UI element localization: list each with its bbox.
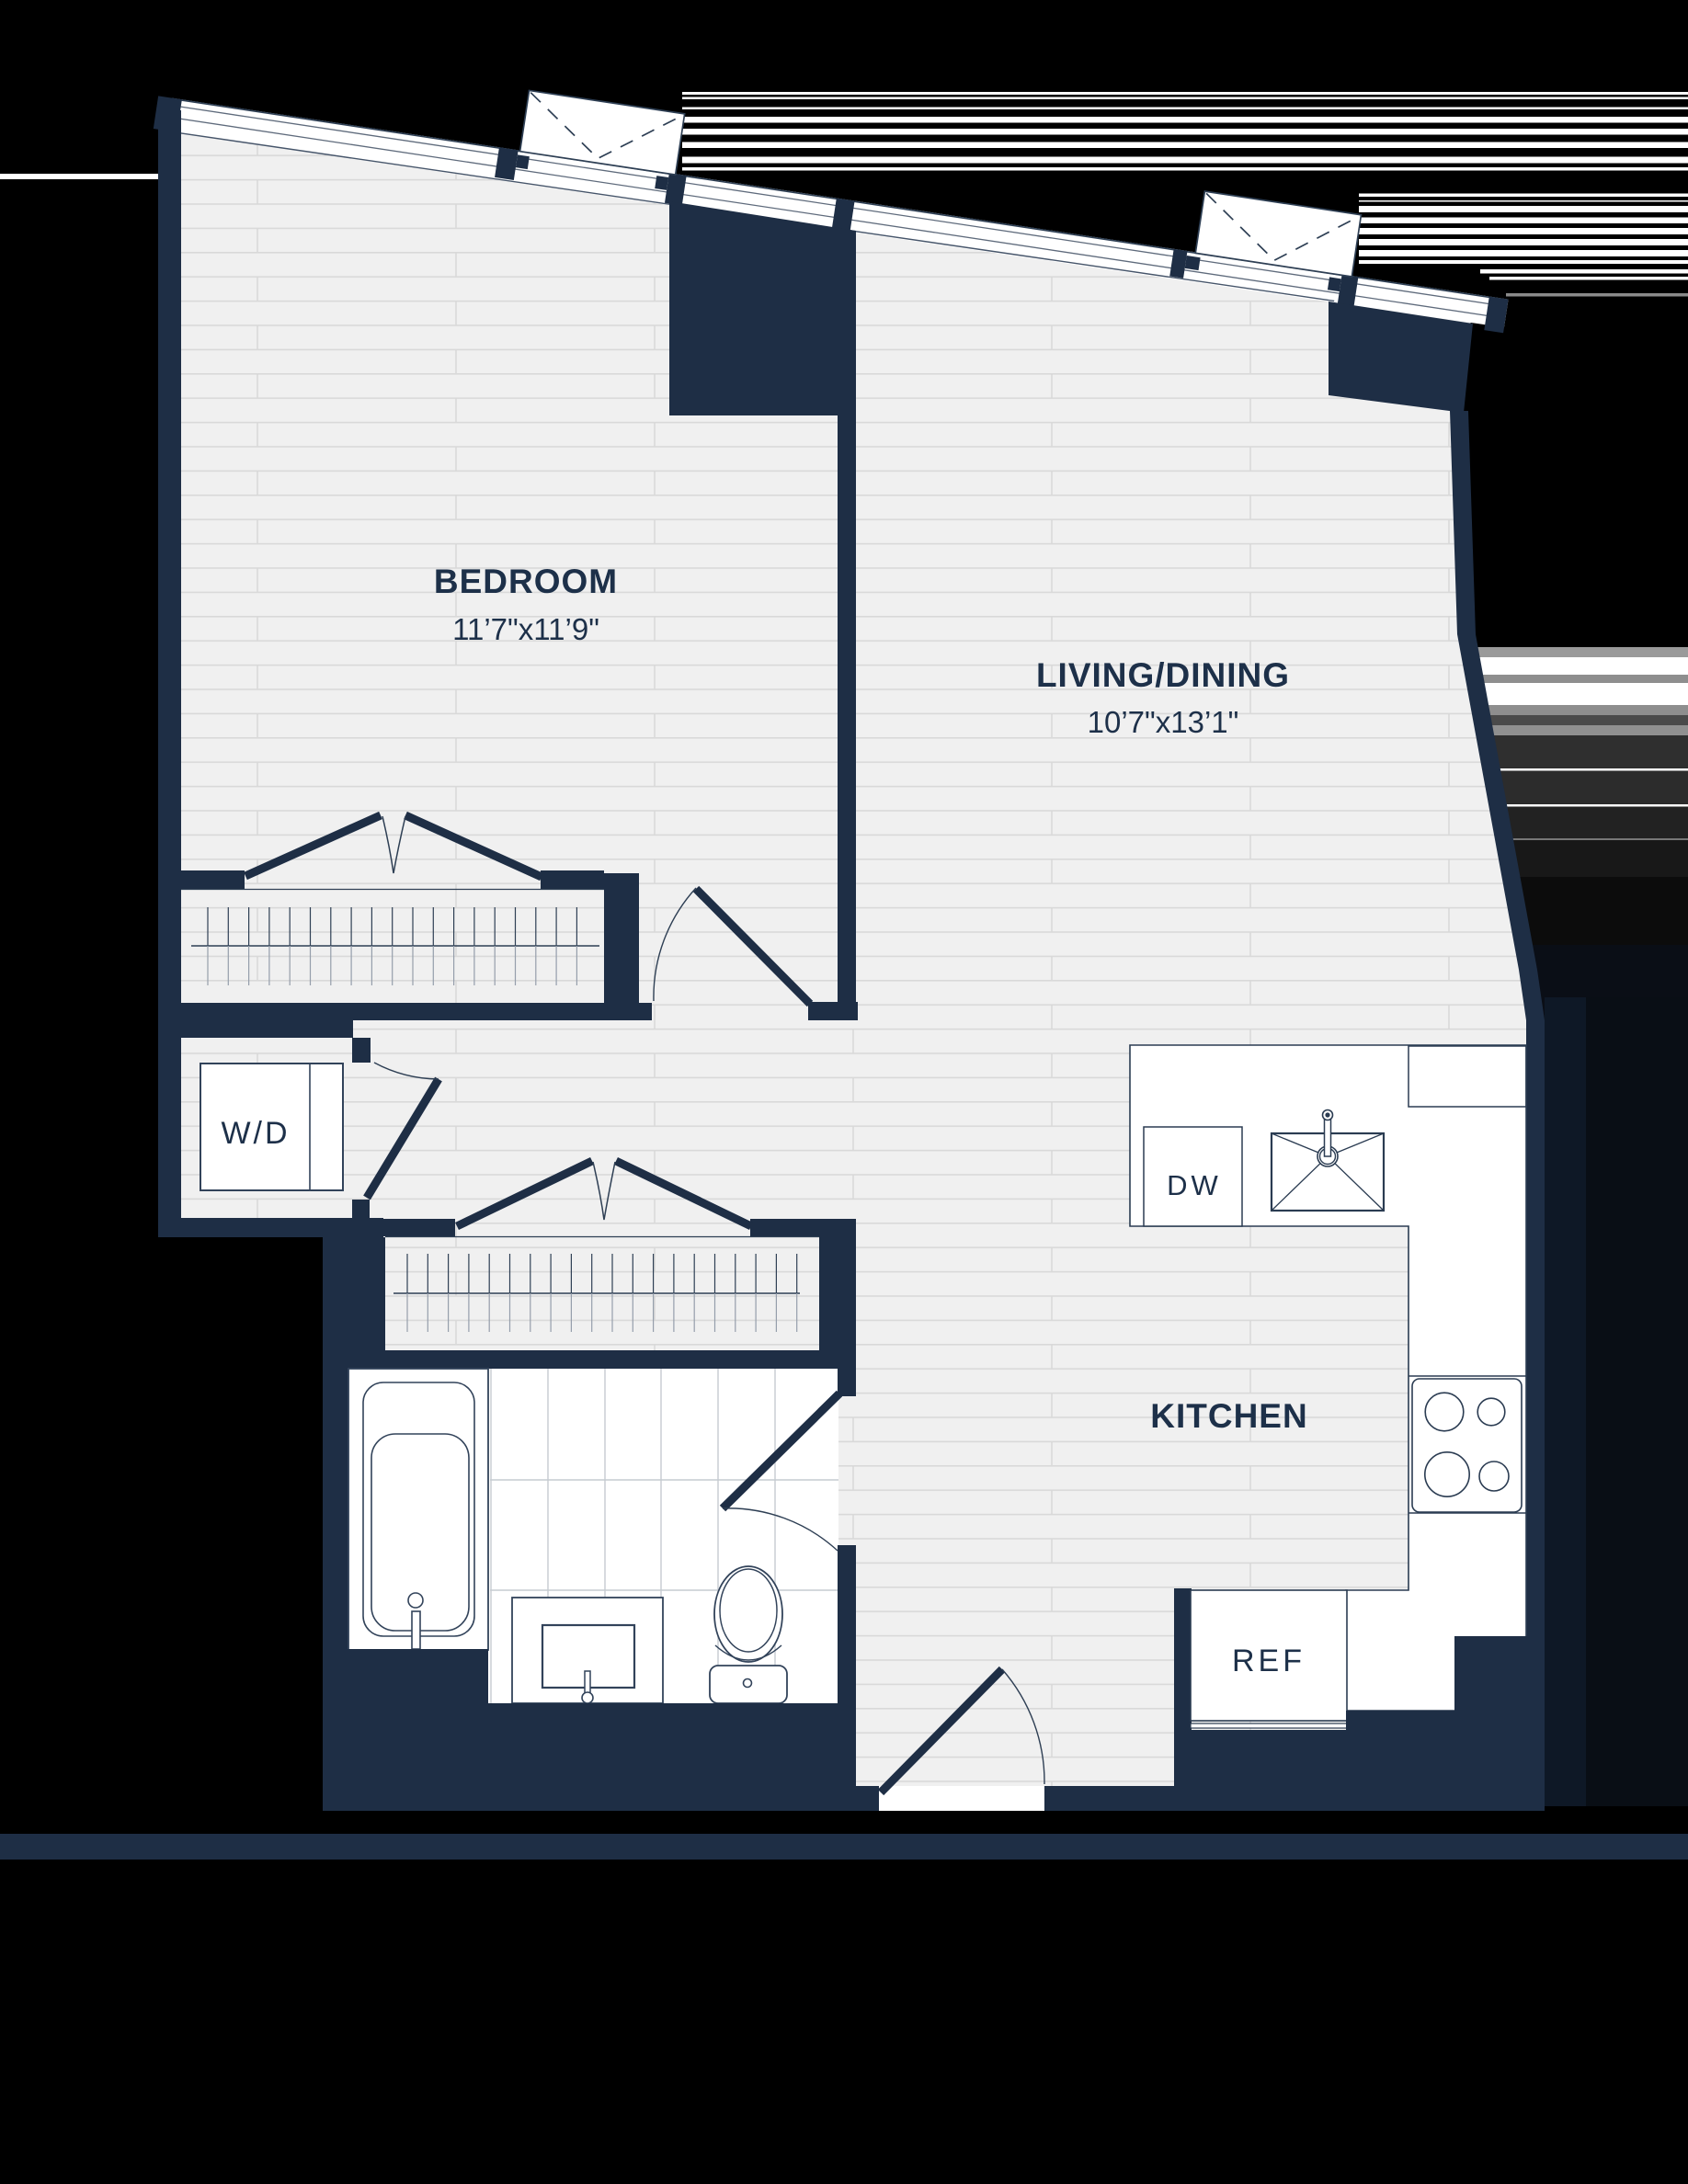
svg-text:11’7"x11’9": 11’7"x11’9" [452, 612, 599, 646]
svg-text:W/D: W/D [221, 1116, 290, 1151]
svg-text:10’7"x13’1": 10’7"x13’1" [1088, 705, 1239, 739]
svg-text:BEDROOM: BEDROOM [434, 563, 618, 600]
svg-text:REF: REF [1232, 1644, 1306, 1678]
svg-text:DW: DW [1167, 1169, 1222, 1201]
svg-text:KITCHEN: KITCHEN [1150, 1397, 1307, 1435]
svg-text:LIVING/DINING: LIVING/DINING [1036, 656, 1290, 694]
